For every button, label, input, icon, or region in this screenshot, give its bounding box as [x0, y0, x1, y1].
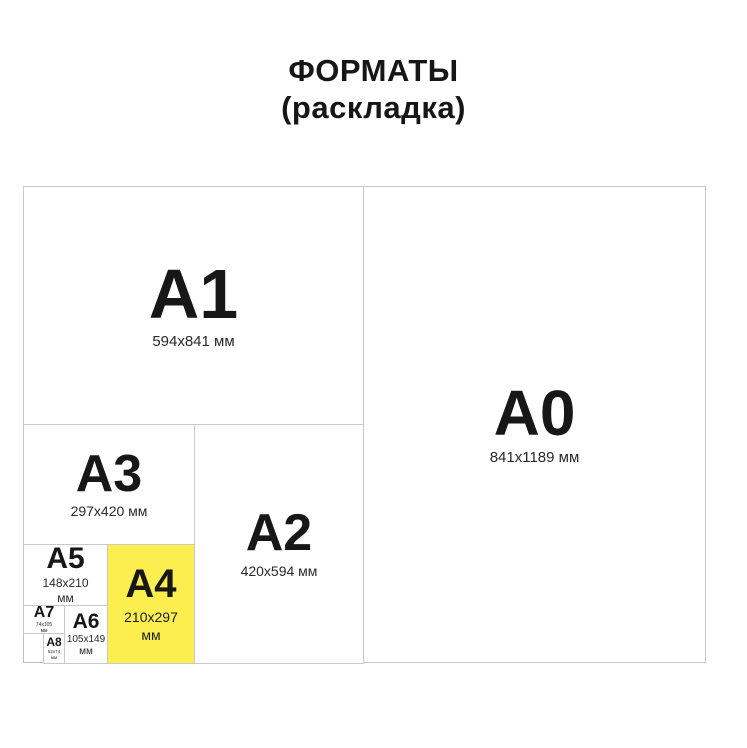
format-box-a4-highlighted: A4 210x297мм — [107, 544, 195, 664]
format-dims-a4: 210x297мм — [124, 609, 178, 644]
format-dims-a6: 105x149мм — [67, 634, 105, 659]
format-box-a1: A1 594x841 мм — [23, 186, 364, 425]
format-box-a7: A7 74x105мм — [23, 605, 65, 634]
title-line-2: (раскладка) — [0, 89, 747, 126]
format-label-a6: A6 — [73, 611, 100, 632]
format-label-a8: A8 — [46, 636, 61, 648]
title-line-1: ФОРМАТЫ — [0, 52, 747, 89]
format-label-a0: A0 — [494, 381, 576, 445]
format-dims-a1: 594x841 мм — [152, 333, 234, 352]
format-label-a2: A2 — [246, 507, 312, 559]
page-title: ФОРМАТЫ (раскладка) — [0, 52, 747, 126]
format-box-a2: A2 420x594 мм — [194, 424, 364, 664]
format-box-a6: A6 105x149мм — [64, 605, 108, 664]
format-dims-a8: 52x74мм — [48, 649, 60, 660]
format-box-a8: A8 52x74мм — [43, 633, 65, 664]
format-box-a3: A3 297x420 мм — [23, 424, 195, 545]
format-label-a4: A4 — [125, 564, 176, 604]
format-label-a1: A1 — [149, 259, 238, 329]
format-dims-a0: 841x1189 мм — [490, 449, 580, 468]
format-dims-a5: 148x210мм — [42, 576, 88, 606]
format-label-a5: A5 — [46, 544, 84, 574]
format-label-a7: A7 — [34, 605, 54, 621]
format-dims-a2: 420x594 мм — [241, 563, 318, 581]
format-box-a0: A0 841x1189 мм — [363, 186, 706, 663]
format-box-a5: A5 148x210мм — [23, 544, 108, 606]
format-label-a3: A3 — [76, 448, 142, 500]
format-dims-a3: 297x420 мм — [71, 503, 148, 521]
paper-formats-diagram: A1 594x841 мм A0 841x1189 мм A3 297x420 … — [23, 186, 706, 663]
